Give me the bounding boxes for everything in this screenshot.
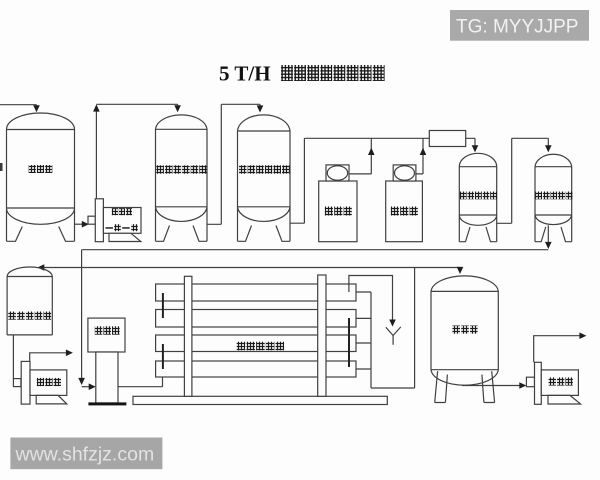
svg-text:TG: MYYJJPP: TG: MYYJJPP	[456, 17, 578, 38]
svg-text:www.shfzjz.com: www.shfzjz.com	[15, 444, 155, 466]
svg-text:5 T/H: 5 T/H	[219, 62, 271, 86]
